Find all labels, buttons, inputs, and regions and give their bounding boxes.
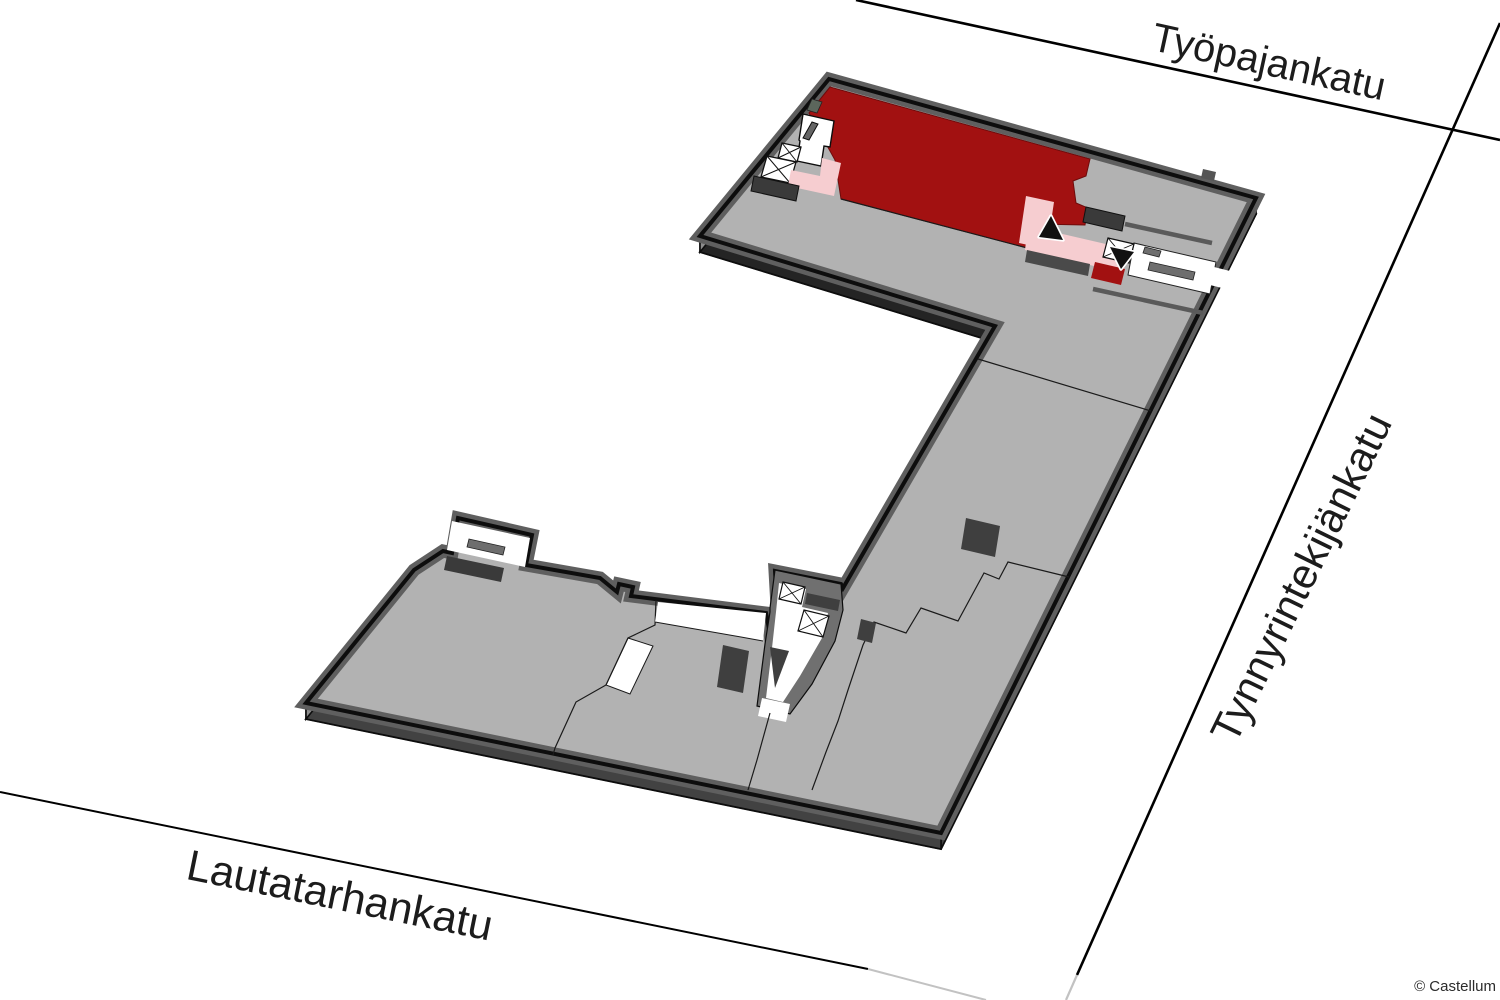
svg-text:© Castellum: © Castellum: [1414, 978, 1496, 995]
